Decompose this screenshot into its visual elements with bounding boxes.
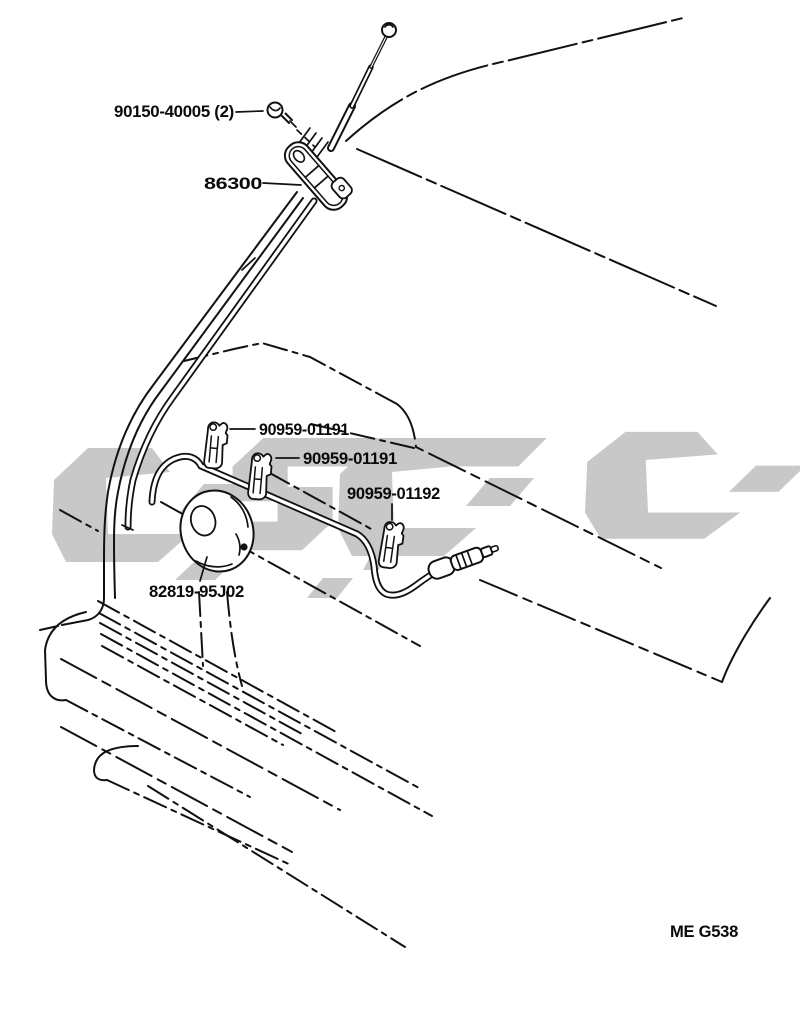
watermark-logo: [52, 432, 800, 598]
part-label-90959-01192: 90959-01192: [347, 484, 440, 503]
antenna-assembly: [280, 23, 396, 215]
part-label-90150-40005: 90150-40005 (2): [114, 102, 234, 121]
parts-diagram-page: 90150-40005 (2) 86300 90959-01191 90959-…: [0, 0, 800, 1034]
mounting-screw: [268, 103, 316, 148]
antenna-base-bracket: [280, 133, 357, 214]
vehicle-body-outline: [40, 18, 770, 947]
figure-code: ME G538: [670, 922, 738, 941]
antenna-diagram-canvas: 90150-40005 (2) 86300 90959-01191 90959-…: [0, 0, 800, 1034]
cable-clamp-1: [204, 422, 229, 470]
part-label-90959-01191-b: 90959-01191: [303, 449, 397, 468]
part-label-82819-95J02: 82819-95J02: [149, 582, 244, 601]
part-label-90959-01191-a: 90959-01191: [259, 420, 349, 439]
antenna-mast: [331, 23, 396, 148]
part-label-86300: 86300: [204, 174, 262, 193]
